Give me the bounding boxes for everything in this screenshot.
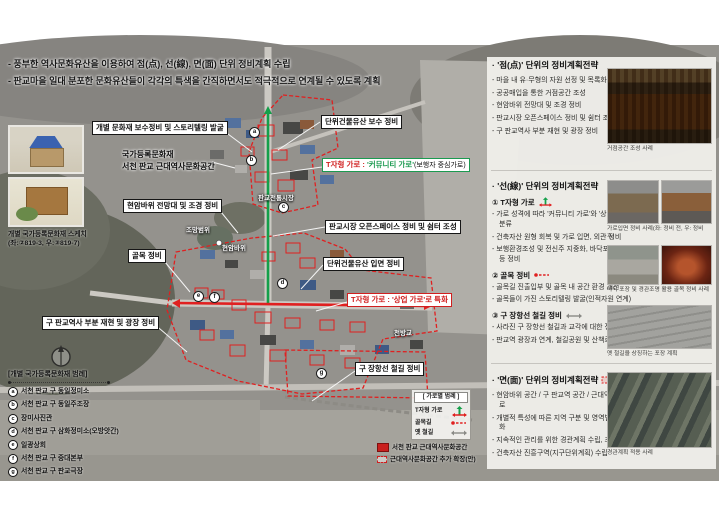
photo-alley-example: 바닥 포장 및 경관조명 활용 골목 정비 사례 xyxy=(607,245,712,295)
legend-leader-line xyxy=(8,382,110,383)
heritage-legend-item: c장미사진관 xyxy=(8,414,148,424)
label-bridge: 천방교 xyxy=(394,330,412,337)
heritage-sketch-left xyxy=(8,125,84,174)
section-divider xyxy=(491,170,712,171)
heritage-legend-item: d서천 판교 구 삼화정미소(오방앗간) xyxy=(8,427,148,437)
header-line-1: - 풍부한 역사문화유산을 이용하여 점(点), 선(線), 면(面) 단위 정… xyxy=(8,59,291,70)
zone-ext-row: 근대역사문화공간 추가 확장(안) xyxy=(377,456,476,463)
strategy-item: - 골목들이 가진 스토리텔링 발굴(인적자원 연계) xyxy=(492,295,639,305)
legend-row-old-rail: 옛 철길 xyxy=(415,430,467,437)
callout-alley: 골목 정비 xyxy=(128,249,166,263)
t-street-icon xyxy=(539,197,552,207)
callout-unit-facade: 단위건물유산 입면 정비 xyxy=(323,257,404,271)
callout-station-plaza: 구 판교역사 부분 재현 및 광장 정비 xyxy=(42,316,159,330)
callout-t-commercial: T자형 가로 : '상업 가로'로 특화 xyxy=(347,293,452,307)
heritage-legend: [개별 국가등록문화재 범례] a서천 판교 구 동일정미소 b서천 판교 구 … xyxy=(8,371,148,477)
label-registered-heritage: 국가등록문화재 서천 판교 근대역사문화공간 xyxy=(122,149,215,173)
legend-row-alley: 골목길 xyxy=(415,420,467,427)
header-line-2: - 판교마을 일대 분포한 문화유산들이 각각의 특색을 간직하면서도 적극적으… xyxy=(8,76,381,87)
plan-figure-page: - 풍부한 역사문화유산을 이용하여 점(点), 선(線), 면(面) 단위 정… xyxy=(0,0,719,507)
heritage-legend-title: [개별 국가등록문화재 범례] xyxy=(8,371,148,379)
photo-caption: 경관계획 적용 사례 xyxy=(607,450,712,458)
old-rail-icon xyxy=(566,313,582,319)
callout-rail-repair: 구 장항선 철길 정비 xyxy=(355,362,424,376)
map-marker-e: e xyxy=(193,291,204,302)
label-market: 판교전통시장 xyxy=(258,195,294,202)
map-marker-f: f xyxy=(209,292,220,303)
photo-caption: 옛 철길을 상징하는 포장 계획 xyxy=(607,351,712,359)
photo-facade-example: 가로입면 정비 사례(좌: 정비 전, 우: 정비 후) xyxy=(607,180,712,241)
callout-heritage-repair: 개별 문화재 보수정비 및 스토리텔링 발굴 xyxy=(92,121,228,135)
photo-image xyxy=(607,180,659,224)
photo-image xyxy=(607,372,712,448)
photo-image xyxy=(607,305,712,349)
sketch-caption: 개별 국가등록문화재 스케치 (좌:②819-3, 우:③819-7) xyxy=(8,230,87,248)
map-marker-c: c xyxy=(278,202,289,213)
photo-caption: 거점공간 조성 사례 xyxy=(607,146,712,154)
heritage-legend-item: a서천 판교 구 동일정미소 xyxy=(8,387,148,397)
alley-icon xyxy=(451,420,467,426)
map-marker-a: a xyxy=(249,127,260,138)
photo-image xyxy=(607,68,712,144)
photo-hub-example: 거점공간 조성 사례 xyxy=(607,68,712,154)
section-divider xyxy=(491,363,712,364)
t-street-icon xyxy=(452,406,467,417)
zone-core-swatch xyxy=(377,443,389,452)
label-view-range: 조망범위 xyxy=(186,227,210,234)
legend-row-t-street: T자형 가로 xyxy=(415,406,467,417)
map-marker-b: b xyxy=(246,155,257,166)
heritage-sketch-right xyxy=(8,177,84,227)
heritage-legend-item: b서천 판교 구 동일주조장 xyxy=(8,400,148,410)
heritage-legend-item: f서천 판교 구 중대본부 xyxy=(8,454,148,464)
photo-caption: 가로입면 정비 사례(좌: 정비 전, 우: 정비 후) xyxy=(607,226,712,241)
map-marker-g: g xyxy=(316,368,327,379)
callout-rock-viewpoint: 현암바위 전망대 및 조경 정비 xyxy=(123,199,222,213)
zone-ext-swatch xyxy=(377,456,387,463)
street-legend: [ 가로별 범례 ] T자형 가로 골목길 옛 철길 xyxy=(411,389,471,440)
photo-image xyxy=(607,245,659,285)
street-legend-title: [ 가로별 범례 ] xyxy=(414,392,468,403)
heritage-legend-item: g서천 판교 구 판교극장 xyxy=(8,467,148,477)
photo-caption: 바닥 포장 및 경관조명 활용 골목 정비 사례 xyxy=(607,287,712,295)
old-rail-icon xyxy=(451,430,467,436)
photo-image xyxy=(661,245,713,285)
photo-paving-example: 옛 철길을 상징하는 포장 계획 xyxy=(607,305,712,359)
heritage-legend-item: e일광상회 xyxy=(8,440,148,450)
zone-core-row: 서천 판교 근대역사문화공간 xyxy=(377,443,467,452)
photo-image xyxy=(661,180,713,224)
callout-t-community: T자형 가로 : '커뮤니티 가로'(보행자 중심가로) xyxy=(322,158,470,172)
label-rock: 현암바위 xyxy=(222,245,246,252)
alley-icon xyxy=(534,272,550,278)
callout-market-openspace: 판교시장 오픈스페이스 정비 및 쉼터 조성 xyxy=(325,220,461,234)
callout-unit-repair: 단위건물유산 보수 정비 xyxy=(321,115,402,129)
map-marker-d: d xyxy=(277,278,288,289)
photo-landscape-example: 경관계획 적용 사례 xyxy=(607,372,712,458)
strategy-sidebar: · '점(点)' 단위의 정비계획전략 - 마을 내 유·무형의 자원 선정 및… xyxy=(487,57,716,469)
